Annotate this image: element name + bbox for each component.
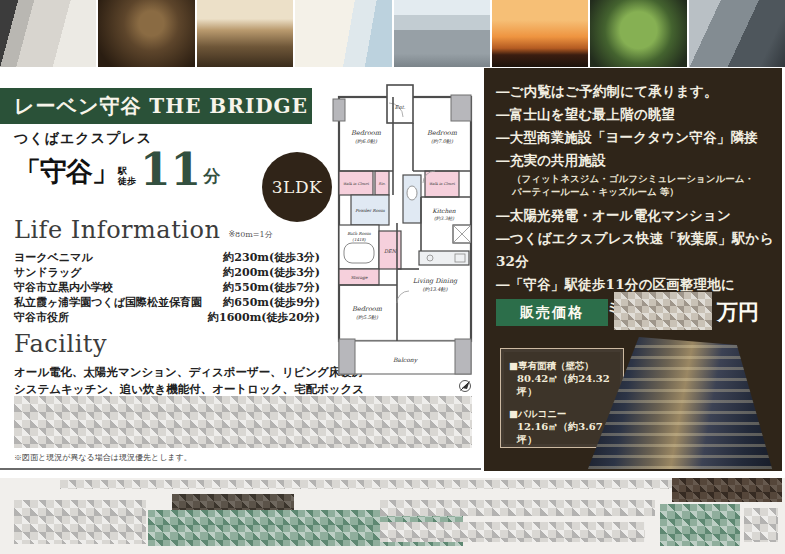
- price-row: 販売価格 万円: [484, 292, 782, 332]
- floorplan-wic-left-label: Walk in Closet: [343, 182, 370, 186]
- photo-balcony-street-view: [394, 0, 490, 67]
- life-information-section: Life Information ※80m=1分 ヨークベニマル 約230m(徒…: [14, 216, 320, 325]
- photo-golf-simulation-room: [590, 0, 686, 67]
- blurred-address-line: [380, 500, 655, 516]
- life-info-row: 守谷市立黒内小学校 約550m(徒歩7分): [14, 280, 320, 295]
- floorplan-bedroom3-label: Bedroom: [352, 305, 383, 313]
- floorplan-bedroom2-label: Bedroom: [427, 129, 458, 137]
- price-label: 販売価格: [496, 299, 608, 326]
- layout-badge: 3LDK: [262, 152, 332, 222]
- poi-distance: 約1600m(徒歩20分): [208, 310, 320, 325]
- walk-label: 徒歩: [118, 176, 136, 186]
- blurred-property-details: [14, 396, 472, 448]
- property-title-banner: レーベン守谷 THE BRIDGE: [0, 88, 312, 124]
- life-info-row: 守谷市役所 約1600m(徒歩20分): [14, 310, 320, 325]
- floorplan-sto-label: Sto.: [378, 182, 385, 186]
- floor-plan: Ent. Bedroom (約6.0帖) Bedroom (約7.0帖) Wal…: [331, 83, 481, 397]
- photo-entrance-hall: [197, 0, 293, 67]
- poi-name: ヨークベニマル: [14, 250, 93, 265]
- blurred-company-name: [14, 500, 146, 544]
- floorplan-living-size: (約13.4帖): [422, 286, 448, 292]
- features-panel: ―ご内覧はご予約制にて承ります。 ―富士山を望む最上階の眺望 ―大型商業施設「ヨ…: [484, 68, 782, 471]
- exclusive-area-value: 80.42㎡（約24.32坪）: [509, 372, 615, 398]
- poi-name: 守谷市立黒内小学校: [14, 280, 113, 295]
- feature-item: ―つくばエクスプレス快速「秋葉原」駅から32分: [496, 227, 774, 273]
- floorplan-wic-right-label: Walk in Closet: [429, 182, 456, 186]
- price-unit: 万円: [717, 298, 759, 326]
- blurred-price-value: [614, 292, 712, 330]
- photo-fitness-gym: [689, 0, 785, 67]
- photo-strip: [0, 0, 785, 67]
- feature-item: ―大型商業施設「ヨークタウン守谷」隣接: [496, 126, 774, 149]
- floorplan-bedroom1-label: Bedroom: [351, 129, 382, 137]
- feature-item: ―太陽光発電・オール電化マンション: [496, 204, 774, 227]
- floorplan-bedroom3-size: (約5.5帖): [356, 314, 379, 320]
- photo-party-room: [295, 0, 391, 67]
- feature-item: ―充実の共用施設: [496, 149, 774, 172]
- floorplan-bedroom2-size: (約7.0帖): [431, 138, 454, 144]
- contact-footer: [0, 478, 785, 554]
- feature-item: ―ご内覧はご予約制にて承ります。: [496, 80, 774, 103]
- blurred-footer-text-strip: [60, 480, 700, 489]
- blurred-brand-block: [672, 478, 782, 502]
- photo-sunset-mtfuji-view: [492, 0, 588, 67]
- property-flyer: レーベン守谷 THE BRIDGE つくばエクスプレス 「守谷」 駅 徒歩 11…: [0, 0, 785, 554]
- train-line-name: つくばエクスプレス: [14, 130, 264, 148]
- poi-distance: 約650m(徒歩9分): [223, 295, 320, 310]
- floorplan-bedroom1-size: (約6.0帖): [355, 138, 378, 144]
- feature-item: ―富士山を望む最上階の眺望: [496, 103, 774, 126]
- balcony-area-label: ■バルコニー: [509, 407, 615, 420]
- feature-sub-note: （フィットネスジム・ゴルフシミュレーションルーム・: [496, 172, 774, 185]
- compass-icon: [460, 381, 471, 392]
- poi-distance: 約230m(徒歩3分): [223, 250, 320, 265]
- floorplan-kitchen-size: (約3.3帖): [434, 216, 454, 221]
- exclusive-area-label: ■専有面積（壁芯）: [509, 359, 615, 372]
- floorplan-ent-label: Ent.: [395, 104, 406, 110]
- blurred-footer-misc: [744, 508, 778, 542]
- blurred-qr-or-logo: [660, 504, 740, 546]
- life-info-row: 私立霞ヶ浦学園つくば国際松並保育園 約650m(徒歩9分): [14, 295, 320, 310]
- floorplan-powder-room-label: Powder Room: [355, 208, 384, 213]
- walk-conversion-note: ※80m=1分: [228, 229, 272, 240]
- walk-minutes: 11: [140, 150, 201, 190]
- photo-lounge-interior: [98, 0, 194, 67]
- station-name: 「守谷」: [14, 154, 118, 190]
- floorplan-bath-room-label: Bath Room: [347, 231, 370, 236]
- poi-distance: 約200m(徒歩3分): [223, 265, 320, 280]
- poi-name: 守谷市役所: [14, 310, 69, 325]
- walk-minutes-unit: 分: [203, 165, 220, 188]
- disclaimer-note: ※図面と現況が異なる場合は現況優先とします。: [14, 452, 192, 463]
- poi-name: 私立霞ヶ浦学園つくば国際松並保育園: [14, 295, 202, 310]
- floorplan-balcony-label: Balcony: [393, 356, 419, 364]
- life-information-title: Life Information: [14, 216, 220, 244]
- floorplan-den-label: DEN: [384, 248, 398, 254]
- floorplan-living-dining-label: Living Dining: [413, 277, 458, 285]
- access-info: つくばエクスプレス 「守谷」 駅 徒歩 11 分: [14, 130, 264, 190]
- floorplan-storage-label: Storage: [351, 275, 368, 280]
- station-walk-labels: 駅 徒歩: [118, 166, 136, 186]
- life-info-row: ヨークベニマル 約230m(徒歩3分): [14, 250, 320, 265]
- life-info-row: サンドラッグ 約200m(徒歩3分): [14, 265, 320, 280]
- divider-line: [0, 468, 481, 470]
- station-label: 駅: [118, 166, 136, 176]
- feature-sub-note: パーティールーム・キッズルーム 等）: [496, 185, 774, 198]
- blurred-license-line: [380, 522, 645, 542]
- floorplan-bath-size: (1418): [352, 237, 366, 242]
- floorplan-kitchen-label: Kitchen: [432, 207, 456, 214]
- poi-distance: 約550m(徒歩7分): [223, 280, 320, 295]
- poi-name: サンドラッグ: [14, 265, 82, 280]
- photo-entrance-approach: [0, 0, 96, 67]
